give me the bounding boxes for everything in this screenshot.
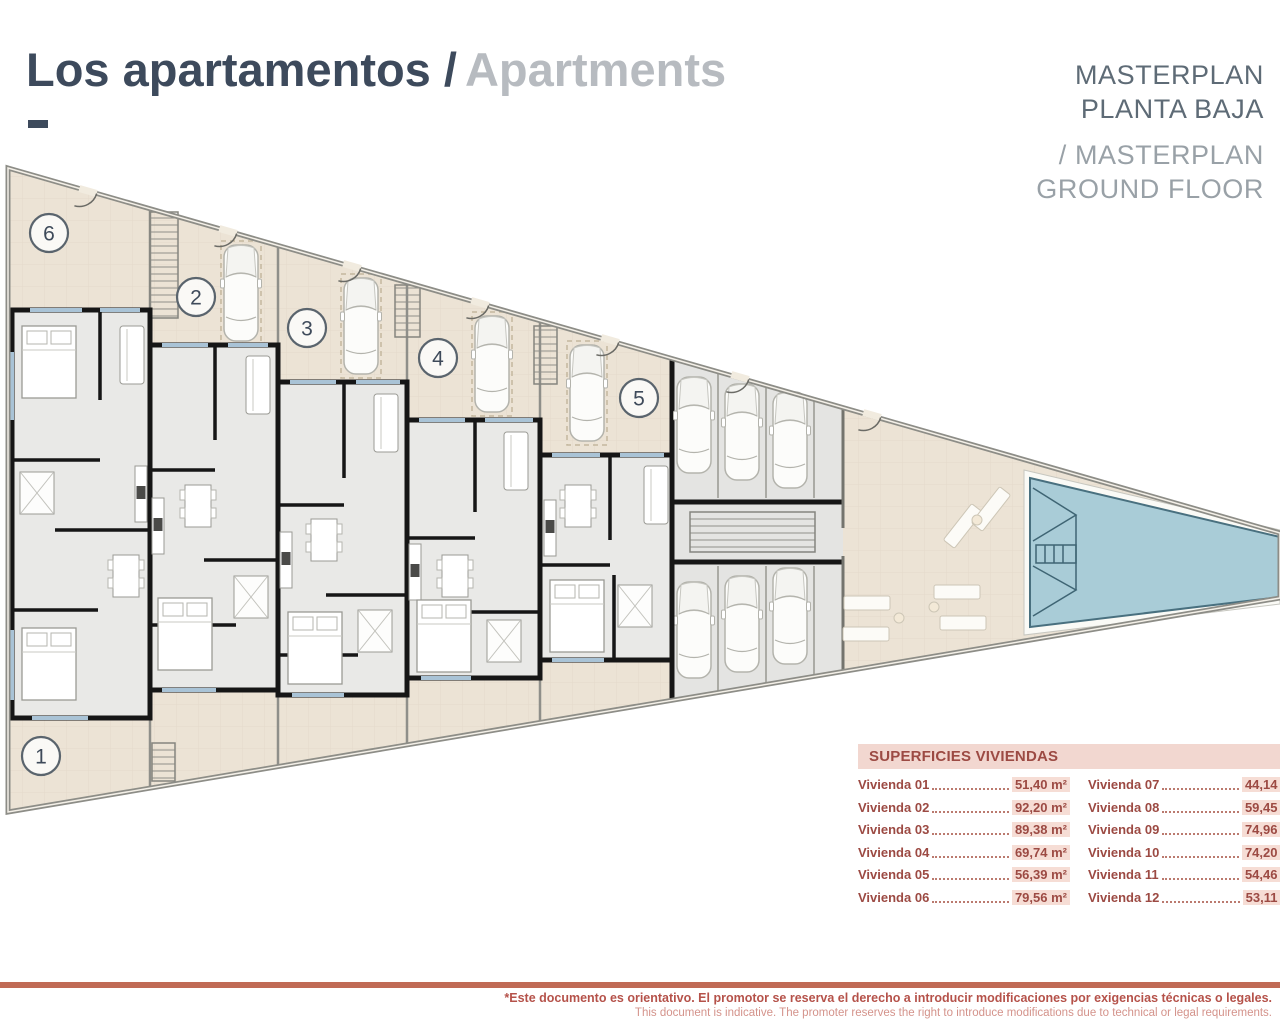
row-label: Vivienda 02 [858,800,929,815]
areas-table-title: SUPERFICIES VIVIENDAS [858,744,1280,769]
dotted-leader [1162,833,1239,835]
unit-5-apartment [540,455,672,660]
footer-accent-bar [0,982,1280,988]
dotted-leader [1162,901,1239,903]
table-row: Vivienda 0859,45 m² [1088,800,1280,815]
row-label: Vivienda 10 [1088,845,1159,860]
row-value: 92,20 m² [1012,800,1070,815]
areas-column-2: Vivienda 0744,14 m² Vivienda 0859,45 m² … [1088,777,1280,912]
row-value: 51,40 m² [1012,777,1070,792]
unit-3-apartment [278,382,407,695]
row-value: 54,46 m² [1242,867,1280,882]
row-label: Vivienda 12 [1088,890,1159,905]
brochure-page: Los apartamentos /Apartments MASTERPLAN … [0,0,1280,1024]
dotted-leader [1162,856,1239,858]
footer-disclaimer-es: *Este documento es orientativo. El promo… [504,991,1272,1005]
unit-marker-3: 3 [288,309,326,347]
unit-marker-2-label: 2 [190,287,202,310]
dotted-leader [932,833,1009,835]
row-label: Vivienda 08 [1088,800,1159,815]
unit-marker-4-label: 4 [432,348,444,371]
unit-marker-2: 2 [177,278,215,316]
dotted-leader [932,901,1009,903]
row-value: 53,11 m² [1243,890,1280,905]
unit-marker-6-label: 6 [43,223,55,246]
table-row: Vivienda 0556,39 m² [858,867,1070,882]
row-label: Vivienda 01 [858,777,929,792]
unit-marker-3-label: 3 [301,318,313,341]
row-label: Vivienda 05 [858,867,929,882]
table-row: Vivienda 1253,11 m² [1088,890,1280,905]
row-value: 44,14 m² [1242,777,1280,792]
dotted-leader [1162,788,1239,790]
areas-column-1: Vivienda 0151,40 m² Vivienda 0292,20 m² … [858,777,1070,912]
row-label: Vivienda 03 [858,822,929,837]
unit-marker-1-label: 1 [35,746,47,769]
central-staircase [690,512,815,552]
unit-4-apartment [407,420,540,678]
row-value: 56,39 m² [1012,867,1070,882]
row-value: 74,96 m² [1242,822,1280,837]
dotted-leader [932,811,1009,813]
row-label: Vivienda 04 [858,845,929,860]
row-value: 59,45 m² [1242,800,1280,815]
footer-disclaimer-en: This document is indicative. The promote… [635,1007,1272,1019]
table-row: Vivienda 1074,20 m² [1088,845,1280,860]
row-value: 74,20 m² [1242,845,1280,860]
table-row: Vivienda 1154,46 m² [1088,867,1280,882]
table-row: Vivienda 0151,40 m² [858,777,1070,792]
table-row: Vivienda 0974,96 m² [1088,822,1280,837]
row-label: Vivienda 06 [858,890,929,905]
row-value: 89,38 m² [1012,822,1070,837]
unit-6-1-apartment [12,310,150,718]
dotted-leader [1162,878,1239,880]
dotted-leader [1162,811,1239,813]
table-row: Vivienda 0292,20 m² [858,800,1070,815]
dotted-leader [932,788,1009,790]
areas-table: SUPERFICIES VIVIENDAS Vivienda 0151,40 m… [858,744,1280,912]
row-label: Vivienda 07 [1088,777,1159,792]
table-row: Vivienda 0744,14 m² [1088,777,1280,792]
unit-marker-5: 5 [620,379,658,417]
unit-marker-4: 4 [419,339,457,377]
unit-2-apartment [150,345,278,690]
row-label: Vivienda 11 [1088,867,1159,882]
unit-marker-1: 1 [22,737,60,775]
table-row: Vivienda 0679,56 m² [858,890,1070,905]
dotted-leader [932,856,1009,858]
dotted-leader [932,878,1009,880]
unit-marker-5-label: 5 [633,388,645,411]
row-label: Vivienda 09 [1088,822,1159,837]
row-value: 69,74 m² [1012,845,1070,860]
table-row: Vivienda 0389,38 m² [858,822,1070,837]
row-value: 79,56 m² [1012,890,1070,905]
table-row: Vivienda 0469,74 m² [858,845,1070,860]
unit-marker-6: 6 [30,214,68,252]
